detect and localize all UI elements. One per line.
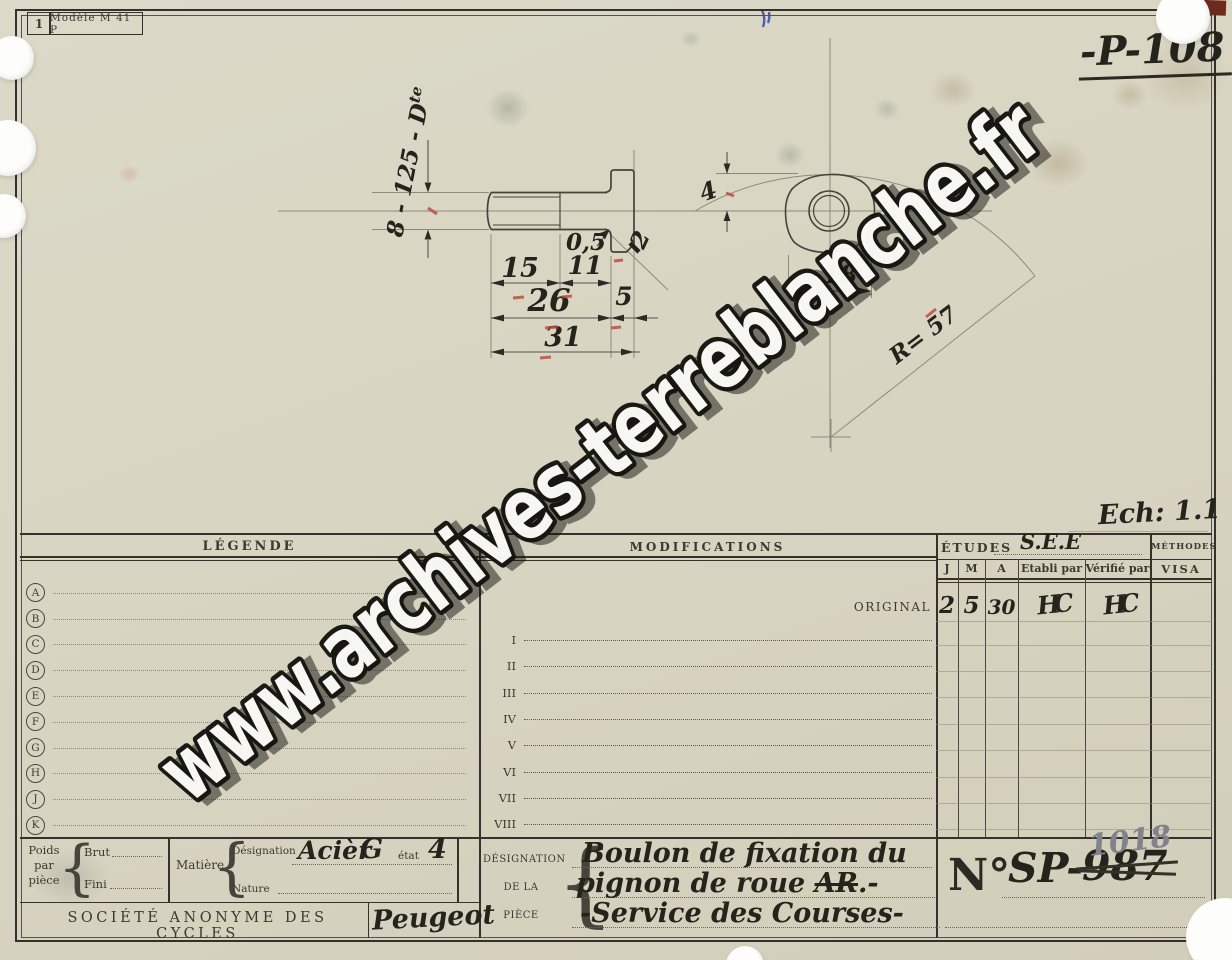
modification-row: III: [486, 680, 932, 706]
scale-label: Ech: 1.1: [1097, 494, 1221, 531]
legend-rule: [53, 772, 466, 774]
verifie-signature: HC: [1085, 590, 1150, 619]
etat-label: état: [398, 850, 419, 862]
header-rule: [20, 556, 936, 558]
legend-rule: [53, 721, 466, 723]
modification-rule: [524, 665, 932, 667]
piece-label: DÉSIGNATION DE LA PIÈCE: [483, 846, 559, 930]
sheet-number-box: 1: [27, 12, 51, 35]
legend-letter-badge: K: [26, 816, 45, 835]
modification-row: I: [486, 627, 932, 653]
etudes-header-rule: [936, 578, 1212, 580]
etudes-row-line: [936, 645, 1212, 646]
modification-row-number: VII: [486, 791, 516, 805]
designation-label: Désignation: [232, 845, 296, 857]
etudes-column-header: A: [985, 562, 1018, 575]
legend-rows: ABCDEFGHJK: [26, 580, 472, 838]
original-text: ORIGINAL: [854, 600, 931, 614]
modification-row: VIII: [486, 811, 932, 837]
etudes-row-line: [936, 697, 1212, 698]
legend-row: H: [26, 761, 472, 787]
divider-legende-modif: [479, 533, 481, 938]
piece-line-3: -Service des Courses-: [580, 898, 904, 929]
legend-row: A: [26, 580, 472, 606]
piece-line-2: pignon de roue AR.-: [576, 868, 879, 899]
drawing-number: -P-108: [1077, 23, 1231, 80]
piece-line-1: Boulon de fixation du: [582, 838, 907, 869]
legend-letter-badge: E: [26, 687, 45, 706]
modification-row-number: IV: [486, 712, 516, 726]
etudes-column-header: M: [958, 562, 985, 575]
matiere-block-end: [457, 837, 459, 902]
fini-rule: [110, 888, 162, 889]
model-label: Modèle M 41 P: [50, 12, 142, 36]
etudes-month: 5: [958, 592, 985, 619]
modification-row-number: I: [486, 633, 516, 647]
legend-letter-badge: A: [26, 583, 45, 602]
etudes-column-header: Etabli par: [1018, 562, 1085, 575]
modification-row-number: III: [486, 686, 516, 700]
modification-rule: [524, 771, 932, 773]
etudes-row-line: [936, 671, 1212, 672]
etudes-row-line: [936, 724, 1212, 725]
legend-row: C: [26, 632, 472, 658]
etudes-column-header: J: [936, 562, 958, 575]
modification-row-number: VIII: [486, 817, 516, 831]
number-rule-1: [1002, 897, 1205, 898]
number-rule-2: [945, 927, 1205, 928]
legend-row: D: [26, 657, 472, 683]
etudes-header-rule-2: [936, 582, 1212, 583]
number-series: SP-: [1008, 844, 1083, 892]
fini-label: Fini: [84, 877, 107, 891]
modification-row: IV: [486, 706, 932, 732]
visa-text: VISA: [1161, 562, 1201, 576]
etudes-column-headers: JMAEtabli parVérifié par: [936, 562, 1150, 575]
modification-rows: IIIIIIIVVVIVIIVIII: [486, 627, 932, 837]
brand-logo: Peugeot: [371, 900, 472, 936]
methodes-title: MÉTHODES: [1151, 542, 1211, 552]
etabli-signature: HC: [1018, 590, 1085, 619]
legend-row: E: [26, 683, 472, 709]
model-box: Modèle M 41 P: [49, 12, 143, 35]
modification-row: II: [486, 653, 932, 679]
modification-row: VII: [486, 785, 932, 811]
brut-label: Brut: [84, 845, 110, 859]
legend-rule: [53, 643, 466, 645]
methodes-title-text: MÉTHODES: [1151, 542, 1217, 552]
etudes-column-header: Vérifié par: [1085, 562, 1150, 575]
header-rule-2: [20, 560, 936, 561]
legend-rule: [53, 695, 466, 697]
modification-rule: [524, 797, 932, 799]
company-name: SOCIÉTÉ ANONYME DES CYCLES: [30, 910, 365, 942]
etudes-row-line: [936, 803, 1212, 804]
scale-underline: [1068, 531, 1208, 532]
punch-hole: [726, 946, 764, 960]
modification-row-number: II: [486, 659, 516, 673]
number-prefix: N°: [948, 850, 1010, 901]
legend-letter-badge: D: [26, 661, 45, 680]
poids-label: Poids par pièce: [26, 843, 62, 888]
etudes-year: 30: [985, 595, 1018, 619]
legend-rule: [53, 592, 466, 594]
etudes-row-line: [936, 750, 1212, 751]
modification-rule: [524, 744, 932, 746]
nature-label: Nature: [232, 883, 270, 895]
drawing-sheet: 8 - 125 - Dte 15 11 26 5 31 0,5 2 4 18 R…: [0, 0, 1232, 960]
etudes-service-value: S.E.E: [1020, 529, 1081, 554]
modification-rule: [524, 639, 932, 641]
scale-text: Ech: 1.1: [1097, 494, 1221, 531]
legend-letter-badge: F: [26, 712, 45, 731]
modification-row: V: [486, 732, 932, 758]
modification-row: VI: [486, 758, 932, 784]
modifications-title-text: MODIFICATIONS: [630, 540, 786, 554]
modifications-title: MODIFICATIONS: [479, 540, 936, 554]
legend-letter-badge: J: [26, 790, 45, 809]
legend-rule: [53, 824, 466, 826]
legend-row: B: [26, 606, 472, 632]
legend-rule: [53, 669, 466, 671]
visa-label: VISA: [1151, 562, 1211, 576]
legend-row: F: [26, 709, 472, 735]
legend-letter-badge: C: [26, 635, 45, 654]
etudes-service-rule: [994, 554, 1142, 555]
etudes-row-line: [936, 621, 1212, 622]
legend-rule: [53, 747, 466, 749]
piece-ar-strike: AR: [815, 868, 858, 899]
legend-rule: [53, 798, 466, 800]
legend-rule: [53, 618, 466, 620]
divider-poids-matiere: [168, 837, 170, 902]
modification-rule: [524, 692, 932, 694]
modification-row-number: V: [486, 738, 516, 752]
brand-cell-divider: [368, 902, 369, 938]
grade-value: G: [360, 834, 383, 865]
etudes-title: ÉTUDES: [941, 540, 1012, 555]
nature-rule: [278, 893, 452, 894]
legend-letter-badge: B: [26, 609, 45, 628]
etudes-row-line: [936, 777, 1212, 778]
sheet-number: 1: [35, 17, 43, 31]
etudes-title-text: ÉTUDES: [941, 540, 1012, 555]
legend-row: J: [26, 786, 472, 812]
legend-title-text: LÉGENDE: [202, 539, 296, 554]
brut-rule: [112, 856, 162, 857]
legend-letter-badge: H: [26, 764, 45, 783]
etudes-service-text: S.E.E: [1020, 529, 1081, 554]
modification-rule: [524, 718, 932, 720]
divider-etudes-methodes: [1150, 533, 1152, 837]
etudes-title-rule: [936, 559, 1212, 560]
legend-row: G: [26, 735, 472, 761]
legend-letter-badge: G: [26, 738, 45, 757]
etat-value: 4: [428, 834, 447, 865]
modification-row-number: VI: [486, 765, 516, 779]
legend-title: LÉGENDE: [20, 539, 479, 554]
original-label: ORIGINAL: [843, 600, 931, 614]
etudes-day: 2: [936, 592, 958, 619]
modification-rule: [524, 823, 932, 825]
